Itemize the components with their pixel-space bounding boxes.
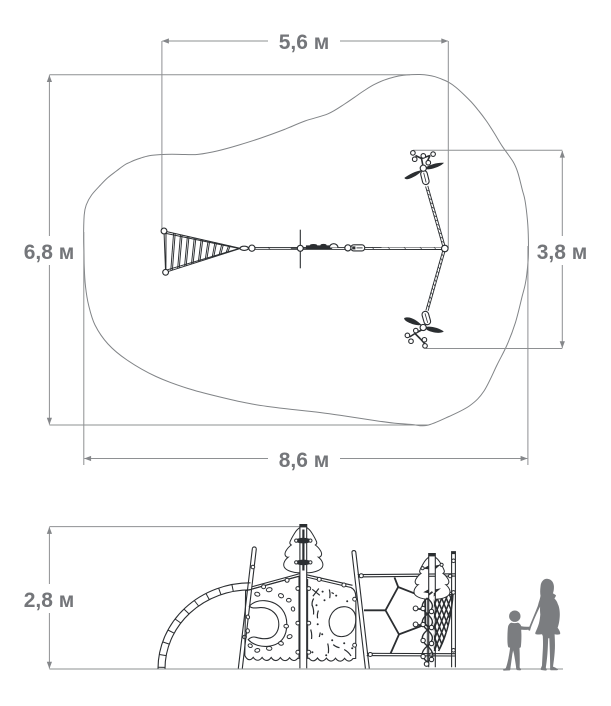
svg-text:2,8 м: 2,8 м xyxy=(24,589,75,612)
svg-text:8,6 м: 8,6 м xyxy=(279,449,330,472)
svg-text:6,8 м: 6,8 м xyxy=(24,241,75,264)
svg-text:3,8 м: 3,8 м xyxy=(537,241,588,264)
svg-text:5,6 м: 5,6 м xyxy=(279,31,330,54)
